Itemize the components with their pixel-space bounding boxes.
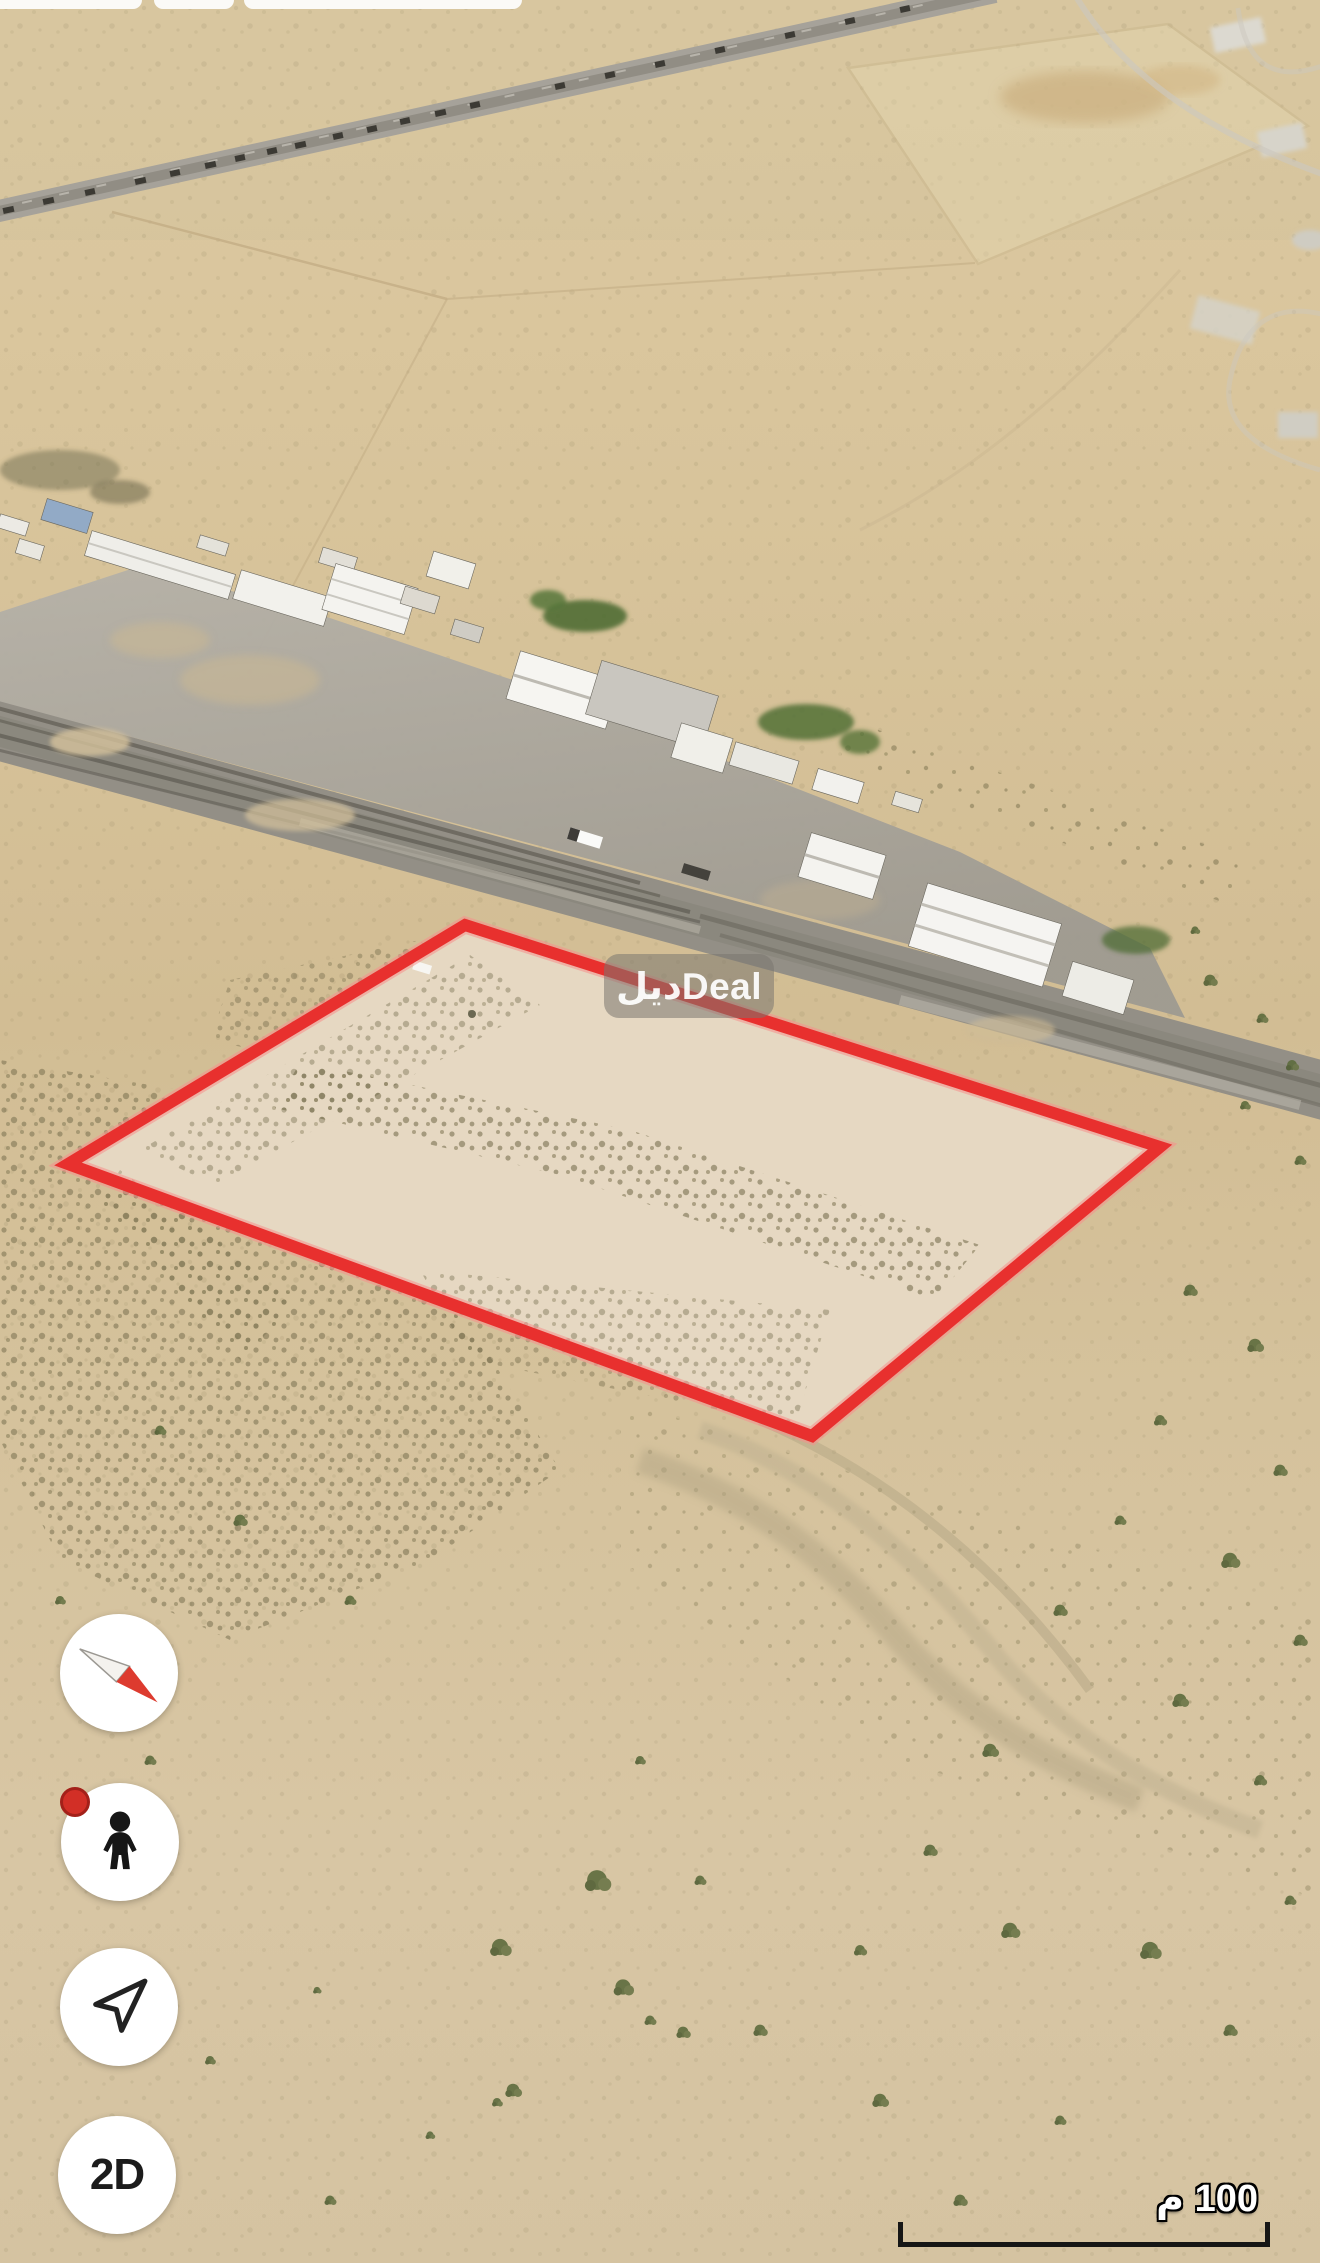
compass-needle-icon xyxy=(64,1618,174,1728)
street-view-button[interactable] xyxy=(61,1783,179,1901)
pegman-icon xyxy=(83,1805,157,1879)
map-app-screen: ديلDeal 2D 100 م xyxy=(0,0,1320,2263)
watermark-badge: ديلDeal xyxy=(604,954,774,1018)
scale-label: 100 م xyxy=(1156,2176,1258,2221)
satellite-map-canvas[interactable] xyxy=(0,0,1320,2263)
2d-toggle-label: 2D xyxy=(90,2150,144,2200)
scale-bar xyxy=(898,2222,1270,2247)
notification-dot-icon xyxy=(60,1787,90,1817)
watermark-label: ديلDeal xyxy=(616,965,762,1008)
navigation-arrow-icon xyxy=(88,1976,150,2038)
top-edge-white-chips xyxy=(0,0,522,9)
2d-toggle-button[interactable]: 2D xyxy=(58,2116,176,2234)
my-location-button[interactable] xyxy=(60,1948,178,2066)
compass-button[interactable] xyxy=(60,1614,178,1732)
